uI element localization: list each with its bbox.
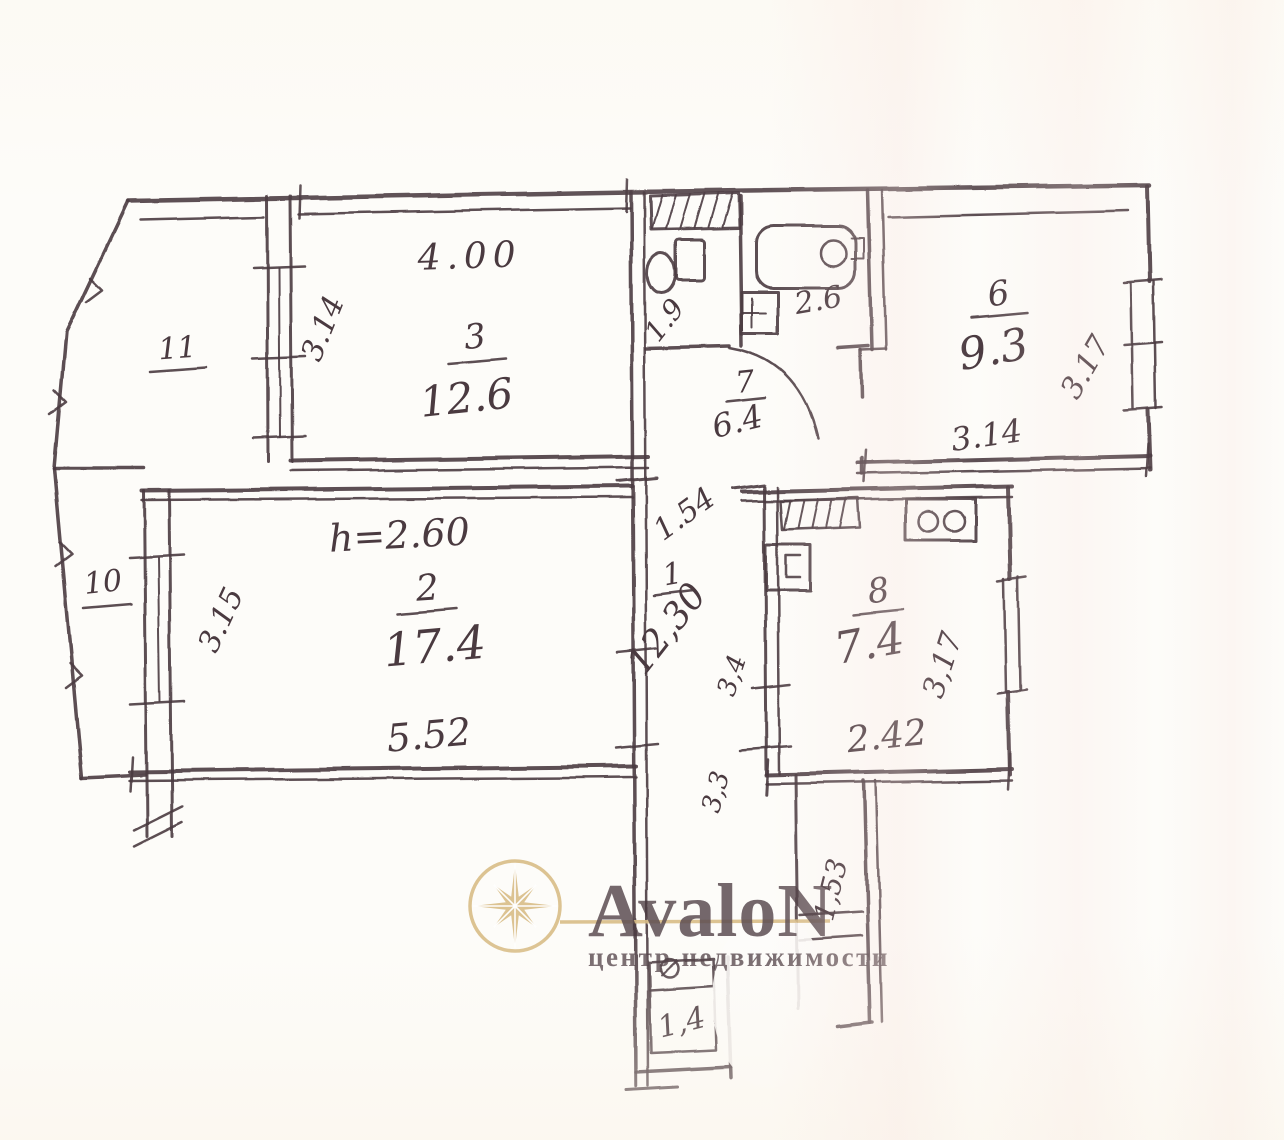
watermark: AvaloN центр недвижимости <box>470 861 890 972</box>
kitchen-area: 7.4 <box>831 613 909 675</box>
ceiling-height-note: h=2.60 <box>328 509 471 560</box>
room-3-depth-dim: 3.14 <box>294 291 351 366</box>
room-3-number: 3 <box>462 316 488 358</box>
hall-number: 7 <box>734 364 758 401</box>
hall-area: 6.4 <box>708 397 767 446</box>
watermark-brand: AvaloN <box>588 869 833 953</box>
room-2-depth-dim: 3.15 <box>191 582 251 657</box>
room-3-width-dim: 4.00 <box>416 234 523 279</box>
corridor-seg2-dim: 3,3 <box>696 768 736 816</box>
corridor-seg1-dim: 3,4 <box>712 651 753 700</box>
kitchen-sink-icon <box>766 545 810 591</box>
kitchen-number: 8 <box>865 570 892 613</box>
room-6-width-dim: 3.14 <box>949 411 1025 459</box>
room-2-number: 2 <box>413 567 440 610</box>
room-6-area: 9.3 <box>955 319 1033 381</box>
bottom-loggia-area: 1,4 <box>654 1000 709 1046</box>
balcony-10-number: 10 <box>82 563 124 602</box>
stove-icon <box>906 499 976 540</box>
kitchen-width-dim: 2.42 <box>844 712 929 761</box>
room-2-width-dim: 5.52 <box>385 709 473 760</box>
toilet-icon <box>647 240 704 293</box>
bathtub-icon <box>756 226 864 288</box>
kitchen-depth-dim: 3,17 <box>916 627 970 702</box>
bath-sink-icon <box>742 292 778 334</box>
balcony-10-walls <box>54 468 145 778</box>
bathroom-area: 2.6 <box>791 279 845 322</box>
room-6-number: 6 <box>985 273 1012 316</box>
compass-rose-icon <box>470 861 560 951</box>
scanned-floorplan-page: 11 10 4.00 3 12.6 3.14 1.9 2.6 6 9.3 3.1… <box>0 0 1284 1140</box>
balcony-11-number: 11 <box>157 330 198 368</box>
fixtures <box>647 226 976 591</box>
room-6-depth-dim: 3.17 <box>1054 329 1118 405</box>
room-3-area: 12.6 <box>417 368 515 427</box>
room-2-area: 17.4 <box>381 615 488 678</box>
watermark-tagline: центр недвижимости <box>588 942 890 972</box>
corridor-width-dim: 1.54 <box>647 481 722 549</box>
floorplan-svg: 11 10 4.00 3 12.6 3.14 1.9 2.6 6 9.3 3.1… <box>0 0 1284 1140</box>
